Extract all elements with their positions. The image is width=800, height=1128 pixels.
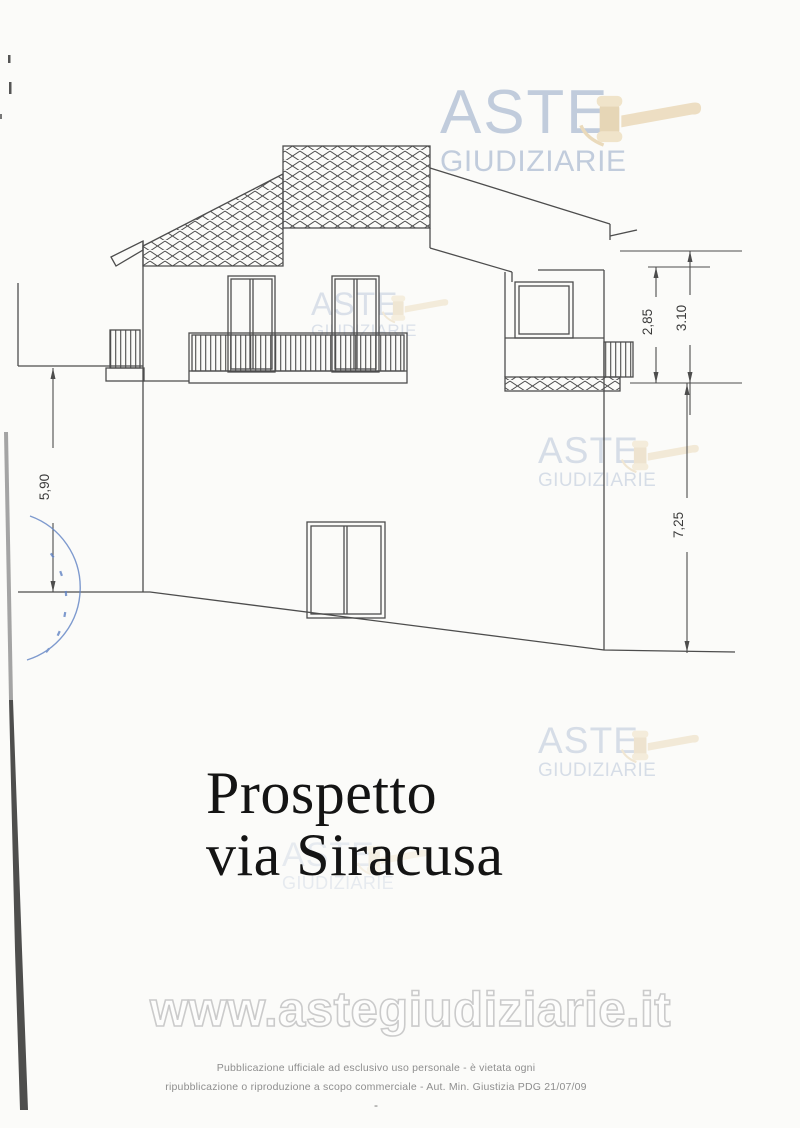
title-line-1: Prospetto <box>206 762 504 824</box>
footer-dash: - <box>0 1098 752 1112</box>
elevation-drawing: 2,85 3.10 5,90 7,25 <box>0 0 800 1128</box>
notice-line-2: ripubblicazione o riproduzione a scopo c… <box>0 1078 752 1097</box>
scanned-page: ASTE GIUDIZIARIE ASTE GIUDIZIARIE ASTE <box>0 0 800 1128</box>
dim-label-7-25: 7,25 <box>671 512 686 538</box>
upper-window-right <box>515 282 573 338</box>
terrain-line <box>18 592 735 652</box>
building-outline <box>18 146 735 652</box>
balcony-railing-left <box>106 330 144 381</box>
balcony-railing-right <box>604 342 633 377</box>
roof-left-slope-hatch <box>143 174 283 266</box>
notice-line-1: Pubblicazione ufficiale ad esclusivo uso… <box>0 1059 752 1078</box>
roof-right-slope <box>430 168 637 282</box>
roof-gable-hatch <box>283 146 430 228</box>
roof-eave-left <box>111 241 143 266</box>
balcony-railing-main <box>189 333 407 383</box>
ground-floor-door <box>307 522 385 618</box>
drawing-title: Prospetto via Siracusa <box>206 762 504 886</box>
url-watermark: www.astegiudiziarie.it <box>150 982 671 1038</box>
dim-label-3-10: 3.10 <box>674 305 689 331</box>
balcony-slab-hatch <box>505 377 620 391</box>
title-line-2: via Siracusa <box>206 824 504 886</box>
dim-label-2-85: 2,85 <box>640 309 655 335</box>
dim-label-5-90: 5,90 <box>37 474 52 500</box>
publication-notice: Pubblicazione ufficiale ad esclusivo uso… <box>0 1059 752 1097</box>
scan-artifact-line <box>0 55 28 1110</box>
